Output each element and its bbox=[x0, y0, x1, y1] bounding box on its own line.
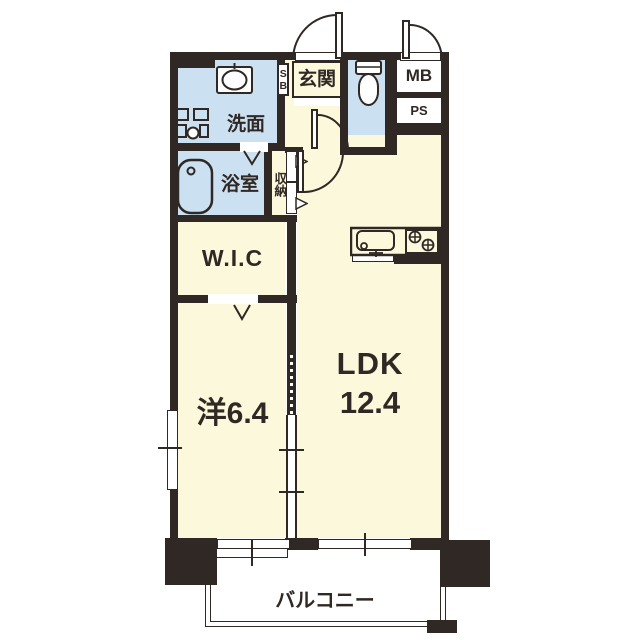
bedroom-left-window-tick bbox=[158, 447, 182, 449]
floor-plan: 玄関 SB 洗面 浴室 収納 W.I.C 洋6.4 LDK 12.4 MB PS… bbox=[0, 0, 640, 640]
wall-corner-top-left-block bbox=[170, 52, 215, 68]
ldk-door-leaf bbox=[297, 150, 304, 193]
storage-doors-split bbox=[287, 181, 296, 183]
ldk-balcony-window-tick bbox=[364, 533, 366, 556]
wall-left-lower bbox=[170, 490, 178, 540]
washing-machine-icon bbox=[215, 63, 254, 95]
wall-corner-bottom-left-block bbox=[165, 540, 217, 585]
toilet-icon bbox=[354, 60, 384, 108]
mb-door-swing bbox=[410, 24, 443, 60]
bathroom-folding-door-icon bbox=[243, 150, 263, 166]
wall-divider-solid bbox=[287, 215, 296, 355]
entry-door-swing bbox=[292, 14, 337, 60]
meter-box-label: MB bbox=[397, 58, 441, 92]
bedroom-left-window bbox=[167, 410, 178, 490]
toilet-door-leaf bbox=[311, 109, 318, 149]
bathroom-label: 浴室 bbox=[212, 172, 268, 196]
pipe-space-label: PS bbox=[397, 98, 441, 123]
ldk-label: LDK bbox=[330, 345, 410, 381]
wall-under-ps bbox=[397, 123, 449, 135]
shoe-box-label: SB bbox=[277, 64, 289, 95]
storage-door-arrow-icon bbox=[295, 197, 308, 210]
wall-divider-dotted bbox=[287, 355, 296, 415]
entrance-step bbox=[294, 98, 340, 106]
bathtub-icon bbox=[176, 158, 216, 216]
bedroom-label: 洋6.4 bbox=[180, 395, 285, 433]
room-ldk bbox=[297, 135, 441, 538]
vanity-sink-icon bbox=[175, 103, 211, 143]
wic-door-opening bbox=[208, 294, 258, 304]
kitchen-counter-icon bbox=[350, 226, 442, 260]
bedroom-ldk-sliding-door bbox=[286, 415, 297, 538]
wic-label: W.I.C bbox=[180, 244, 285, 272]
sliding-door-tick-1 bbox=[279, 449, 304, 451]
wall-corner-bottom-right-block bbox=[441, 540, 490, 587]
balcony-label: バルコニー bbox=[255, 588, 395, 614]
sliding-door-tick-2 bbox=[279, 491, 304, 493]
storage-label: 収納 bbox=[271, 158, 287, 210]
bedroom-balcony-window-tick bbox=[251, 540, 253, 566]
entrance-label: 玄関 bbox=[294, 64, 340, 94]
wic-folding-door-icon bbox=[233, 304, 253, 321]
mb-door-leaf bbox=[402, 20, 410, 59]
wall-toilet-right bbox=[385, 52, 397, 155]
ldk-size-label: 12.4 bbox=[330, 384, 410, 420]
washroom-label: 洗面 bbox=[218, 112, 274, 136]
balcony-corner-block bbox=[427, 620, 457, 633]
wall-under-bathroom bbox=[170, 215, 297, 222]
